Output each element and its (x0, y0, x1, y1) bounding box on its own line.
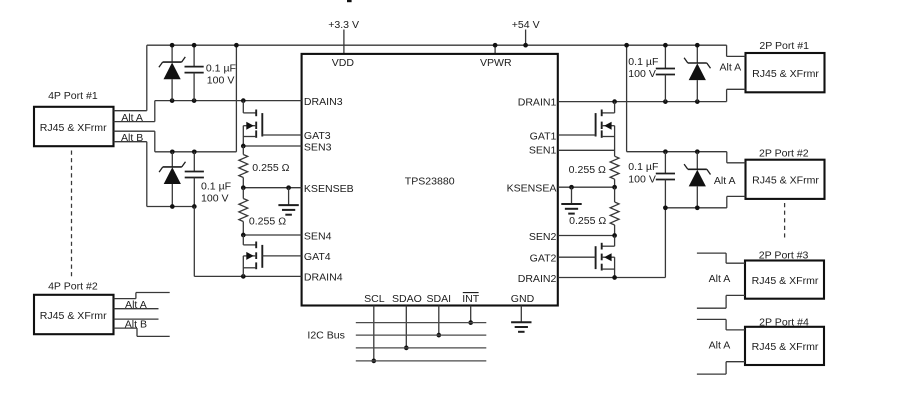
svg-text:4P Port #2: 4P Port #2 (48, 281, 98, 293)
svg-text:SDAI: SDAI (426, 293, 451, 305)
svg-text:DRAIN1: DRAIN1 (518, 97, 557, 109)
svg-text:GND: GND (511, 293, 535, 305)
svg-text:RJ45 & XFrmr: RJ45 & XFrmr (752, 275, 819, 287)
svg-text:0.255 Ω: 0.255 Ω (569, 164, 606, 176)
svg-text:Alt A: Alt A (709, 340, 732, 352)
svg-text:100 V: 100 V (628, 68, 656, 80)
svg-text:INT: INT (462, 293, 480, 305)
svg-text:SEN3: SEN3 (304, 141, 332, 153)
svg-text:Alt A: Alt A (121, 112, 144, 124)
svg-text:SEN1: SEN1 (529, 145, 557, 157)
svg-text:100 V: 100 V (201, 193, 229, 205)
svg-text:RJ45 & XFrmr: RJ45 & XFrmr (752, 175, 819, 187)
svg-text:RJ45 & XFrmr: RJ45 & XFrmr (752, 68, 819, 80)
svg-text:100 V: 100 V (207, 74, 235, 86)
svg-text:2P Port #1: 2P Port #1 (759, 40, 809, 52)
svg-text:Alt A: Alt A (714, 175, 737, 187)
svg-text:VDD: VDD (332, 57, 355, 69)
svg-text:DRAIN4: DRAIN4 (304, 272, 343, 284)
svg-text:RJ45 & XFrmr: RJ45 & XFrmr (40, 122, 107, 134)
svg-text:GAT1: GAT1 (530, 130, 557, 142)
svg-text:GAT3: GAT3 (304, 130, 331, 142)
svg-text:0.1 µF: 0.1 µF (201, 181, 232, 193)
svg-text:DRAIN3: DRAIN3 (304, 96, 343, 108)
svg-text:0.255 Ω: 0.255 Ω (569, 215, 606, 227)
svg-text:100 V: 100 V (628, 173, 656, 185)
svg-text:DRAIN2: DRAIN2 (518, 273, 557, 285)
svg-text:2P Port #2: 2P Port #2 (759, 148, 809, 160)
svg-text:0.1 µF: 0.1 µF (628, 161, 659, 173)
svg-text:KSENSEB: KSENSEB (304, 183, 354, 195)
svg-text:Alt A: Alt A (719, 62, 742, 74)
svg-text:Alt A: Alt A (125, 299, 148, 311)
svg-text:+3.3 V: +3.3 V (328, 19, 359, 31)
svg-text:4P Port #1: 4P Port #1 (48, 90, 98, 102)
svg-text:I2C Bus: I2C Bus (307, 329, 345, 341)
svg-text:VPWR: VPWR (480, 57, 512, 69)
svg-text:+54 V: +54 V (512, 19, 540, 31)
svg-text:0.1 µF: 0.1 µF (628, 56, 659, 68)
svg-text:TPS23880: TPS23880 (405, 176, 455, 188)
svg-text:KSENSEA: KSENSEA (507, 183, 558, 195)
svg-text:Alt A: Alt A (709, 273, 732, 285)
svg-text:SCL: SCL (364, 293, 385, 305)
svg-text:SDAO: SDAO (392, 293, 422, 305)
svg-text:GAT2: GAT2 (530, 253, 557, 265)
svg-text:SEN4: SEN4 (304, 230, 332, 242)
svg-text:0.255 Ω: 0.255 Ω (252, 162, 289, 174)
svg-text:Alt B: Alt B (125, 319, 147, 331)
svg-text:RJ45 & XFrmr: RJ45 & XFrmr (40, 310, 107, 322)
svg-text:GAT4: GAT4 (304, 251, 331, 263)
svg-text:0.255 Ω: 0.255 Ω (249, 216, 286, 228)
svg-text:RJ45 & XFrmr: RJ45 & XFrmr (752, 341, 819, 353)
svg-text:0.1 µF: 0.1 µF (206, 63, 237, 75)
svg-text:SEN2: SEN2 (529, 231, 557, 243)
